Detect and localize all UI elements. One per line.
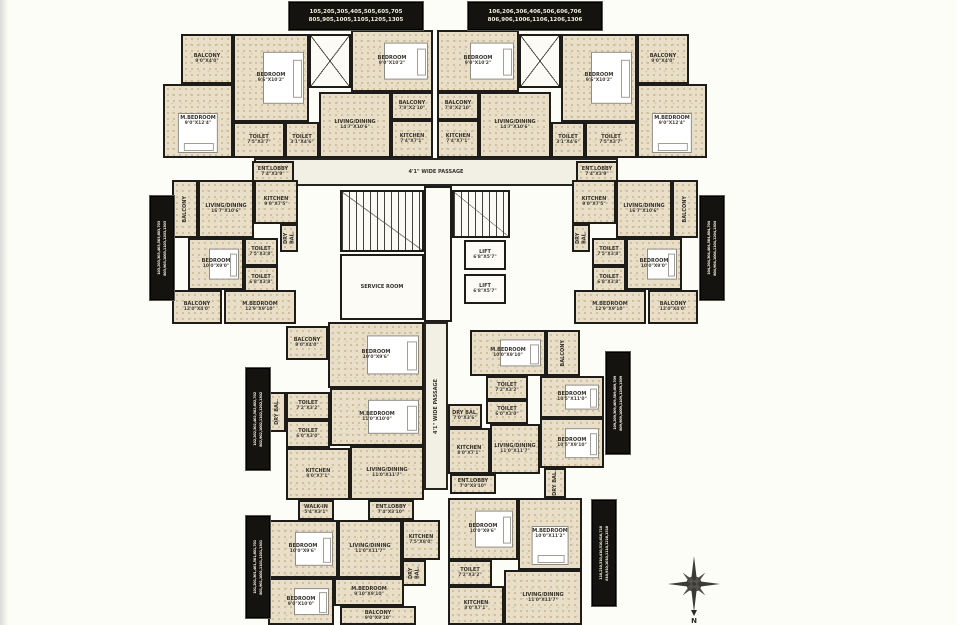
flat-stack-106: 106,206,306,406,506,606,706806,906,1006,… [468,2,602,30]
core-lobby [424,186,452,322]
u09-balcony-label: BALCONY [560,340,566,367]
pillow-icon [319,592,327,613]
u06-bedroom-dimensions: 9'6"X10'2" [586,78,613,83]
u09-bedroom-1-dimensions: 10'5"X11'0" [557,397,587,402]
flat-stack-103-line1: 103,203,303,403,503,603,703 [157,221,161,275]
flat-stack-101-line1: 101,201,301,401,501,601,701 [253,540,257,594]
u06-toilet-2: TOILET3'1"X4'6" [551,122,585,158]
u04-mbedroom: M.BEDROOM12'9"X9'10" [574,290,646,324]
flat-stack-106-line1: 106,206,306,406,506,606,706 [489,9,582,16]
passage-horizontal: 4'1" WIDE PASSAGE [254,158,618,186]
u01-bedroom-2-dimensions: 9'0"X10'0" [288,602,315,607]
passage-vertical-label: 4'1" WIDE PASSAGE [433,379,439,434]
floor-plan: N 4'1" WIDE PASSAGE4'1" WIDE PASSAGESERV… [0,0,957,625]
u10-kitchen: KITCHEN8'0"X7'1" [448,586,504,625]
u05-duct [309,34,351,88]
u05-toilet-1-dimensions: 7'5"X3'7" [247,140,270,145]
u01-mbedroom: M.BEDROOM9'10"X9'10" [334,578,404,606]
u04-balcony-1-label: BALCONY [682,196,688,223]
pillow-icon [503,48,512,75]
u04-toilet-2-dimensions: 6'8"X3'8" [597,280,620,285]
u01-bedroom-1-dimensions: 10'0"X9'6" [290,549,317,554]
u05-bedroom-2: BEDROOM9'0"X10'2" [351,30,433,92]
u01-walk-in: WALK-IN5'4"X3'1" [298,500,334,520]
flat-stack-102-line1: 102,202,302,402,502,602,702 [253,392,257,446]
u05-toilet-2: TOILET3'1"X4'6" [285,122,319,158]
flat-stack-103: 103,203,303,403,503,603,703803,903,1003,… [150,196,174,300]
u09-mbedroom: M.BEDROOM10'0"X9'10" [470,330,546,376]
flat-stack-106-line2: 806,906,1006,1106,1206,1306 [488,17,583,24]
u03-dry-bal-label: DRY BAL. [283,226,296,250]
compass-rose: N [662,550,726,624]
flat-stack-105-line2: 805,905,1005,1105,1205,1305 [309,17,404,24]
u04-dry-bal-label: DRY BAL. [575,226,588,250]
u05-kitchen-dimensions: 7'4"X7'1" [400,139,423,144]
flat-stack-109: 109,209,309,409,509,609,709809,909,1009,… [606,352,630,454]
u02-dry-bal: DRY BAL. [268,392,286,432]
lift-1: LIFT6'8"X5'7" [464,240,506,270]
u05-bedroom-2-dimensions: 9'0"X10'2" [379,61,406,66]
u04-mbedroom-dimensions: 12'9"X9'10" [595,307,625,312]
u01-ent-lobby-dimensions: 7'4"X3'10" [378,510,405,515]
flat-stack-110-line2: 810,910,1010,1110,1210,1310 [605,526,609,581]
u03-toilet-2-dimensions: 6'8"X3'8" [249,280,272,285]
u02-living-dimensions: 11'0"X11'7" [372,473,402,478]
flat-stack-109-line2: 809,909,1009,1109,1209,1309 [619,376,623,431]
u06-living-dimensions: 14'7"X10'6" [500,125,530,130]
u09-toilet-1: TOILET7'2"X3'2" [486,376,528,400]
compass-north-label: N [691,617,697,624]
lift-2: LIFT6'8"X5'7" [464,274,506,304]
pillow-icon [530,344,539,364]
u09-living: LIVING/DINING11'0"X11'7" [490,424,540,474]
u03-mbedroom: M.BEDROOM12'9"X9'10" [224,290,296,324]
u04-dry-bal: DRY BAL. [572,224,590,252]
u06-balcony-2-dimensions: 7'8"X2'10" [445,106,472,111]
u03-kitchen: KITCHEN9'0"X7'5" [254,180,298,224]
u03-toilet-1-dimensions: 7'5"X3'8" [249,252,272,257]
u09-dry-bal-2-label: DRY BAL. [552,470,558,496]
service-room: SERVICE ROOM [340,254,424,320]
staircase-right [452,190,510,238]
u09-kitchen: KITCHEN8'0"X7'1" [448,428,490,474]
u10-bedroom: BEDROOM10'0"X9'6" [448,498,518,560]
north-arrow-icon [691,610,697,616]
u05-living: LIVING/DINING14'7"X10'6" [319,92,391,158]
u04-balcony-2-dimensions: 12'0"X4'0" [660,307,687,312]
u03-ent-lobby-dimensions: 7'4"X3'9" [261,172,284,177]
u06-toilet-2-dimensions: 3'1"X4'6" [556,140,579,145]
u03-dry-bal: DRY BAL. [280,224,298,252]
pillow-icon [668,254,675,277]
u06-balcony-dimensions: 9'0"X4'0" [651,59,674,64]
u09-bedroom-2-dimensions: 10'5"X9'10" [557,443,587,448]
u03-kitchen-dimensions: 9'0"X7'5" [264,202,287,207]
flat-stack-101-line2: 801,901,1001,1101,1201,1301 [259,540,263,595]
u04-living: LIVING/DINING16'7"X10'6" [616,180,672,238]
u01-bedroom-2: BEDROOM9'0"X10'0" [268,578,334,625]
u09-dry-bal-2: DRY BAL. [544,468,566,498]
u04-bedroom: BEDROOM10'0"X9'0" [626,238,682,290]
u09-toilet-2: TOILET6'0"X3'0" [486,400,528,424]
u02-kitchen-dimensions: 8'0"X7'1" [306,474,329,479]
u01-walk-in-dimensions: 5'4"X3'1" [304,510,327,515]
flat-stack-110-line1: 110,210,310,410,510,610,710 [599,526,603,580]
u10-kitchen-dimensions: 8'0"X7'1" [464,606,487,611]
u04-kitchen: KITCHEN9'0"X7'5" [572,180,616,224]
u05-toilet-2-dimensions: 3'1"X4'6" [290,140,313,145]
u03-bedroom: BEDROOM10'0"X9'0" [188,238,244,290]
u05-bedroom-dimensions: 9'6"X10'2" [258,78,285,83]
flat-stack-109-line1: 109,209,309,409,509,609,709 [613,376,617,430]
flat-stack-104-line1: 104,204,304,404,504,604,704 [707,221,711,275]
lift-1-dimensions: 6'8"X5'7" [473,255,496,260]
u01-living-dimensions: 11'0"X11'7" [355,549,385,554]
u02-toilet-1-dimensions: 7'2"X3'2" [296,406,319,411]
pillow-icon [407,405,417,430]
u02-living: LIVING/DINING11'0"X11'7" [350,446,424,500]
u03-balcony-1-label: BALCONY [182,196,188,223]
u03-balcony-2: BALCONY12'0"X4'0" [172,290,222,324]
u05-balcony-dimensions: 9'0"X4'0" [195,59,218,64]
u06-bedroom-2: BEDROOM9'0"X10'2" [437,30,519,92]
u06-duct [519,34,561,88]
u09-balcony: BALCONY [546,330,580,376]
flat-stack-102: 102,202,302,402,502,602,702802,902,1002,… [246,368,270,470]
u02-mbedroom: M.BEDROOM11'0"X10'0" [330,388,424,446]
u01-kitchen-dimensions: 7'5"X8'0" [409,540,432,545]
staircase-left [340,190,424,252]
u02-balcony: BALCONY9'0"X4'0" [286,326,328,360]
pillow-icon [590,389,598,407]
u04-kitchen-dimensions: 9'0"X7'5" [582,202,605,207]
u04-toilet-1-dimensions: 7'5"X3'8" [597,252,620,257]
u01-ent-lobby: ENT.LOBBY7'4"X3'10" [368,500,414,520]
pillow-icon [537,555,564,563]
passage-horizontal-label: 4'1" WIDE PASSAGE [409,169,464,175]
u05-balcony-2: BALCONY7'8"X2'10" [391,92,433,120]
flat-stack-105-line1: 105,205,305,405,505,605,705 [310,9,403,16]
u06-balcony-2: BALCONY7'8"X2'10" [437,92,479,120]
u04-bedroom-dimensions: 10'0"X9'0" [641,264,668,269]
u02-toilet-1: TOILET7'2"X3'2" [286,392,330,420]
flat-stack-103-line2: 803,903,1003,1103,1203,1303 [163,221,167,276]
pillow-icon [503,516,511,543]
flat-stack-101: 101,201,301,401,501,601,701801,901,1001,… [246,516,270,618]
u04-balcony-2: BALCONY12'0"X4'0" [648,290,698,324]
u05-bedroom: BEDROOM9'6"X10'2" [233,34,309,122]
u06-mbedroom: M.BEDROOM9'0"X12'4" [637,84,707,158]
u05-toilet-1: TOILET7'5"X3'7" [233,122,285,158]
pillow-icon [323,537,331,562]
u06-kitchen: KITCHEN7'4"X7'1" [437,120,479,158]
u10-mbedroom: M.BEDROOM10'0"X11'2" [518,498,582,570]
u09-living-dimensions: 11'0"X11'7" [500,449,530,454]
pillow-icon [658,143,688,151]
compass-center [692,582,696,586]
u01-mbedroom-dimensions: 9'10"X9'10" [354,592,384,597]
flat-stack-105: 105,205,305,405,505,605,705805,905,1005,… [289,2,423,30]
flat-stack-104: 104,204,304,404,504,604,704804,904,1004,… [700,196,724,300]
flat-stack-102-line2: 802,902,1002,1102,1202,1302 [259,392,263,447]
lift-2-dimensions: 6'8"X5'7" [473,289,496,294]
page-edge-shadow [0,0,8,625]
u06-mbedroom-dimensions: 9'0"X12'4" [659,121,686,126]
u04-balcony-1: BALCONY [672,180,698,238]
u03-living-dimensions: 16'7"X10'6" [211,209,241,214]
u01-bedroom-1: BEDROOM10'0"X9'6" [268,520,338,578]
u02-toilet-2-dimensions: 6'0"X3'0" [296,434,319,439]
u09-dry-bal-1: DRY BAL.7'0"X3'6" [448,404,482,428]
u02-toilet-2: TOILET6'0"X3'0" [286,420,330,448]
u10-toilet-dimensions: 7'2"X3'2" [458,573,481,578]
u02-bedroom: BEDROOM10'0"X9'6" [328,322,424,388]
u09-kitchen-dimensions: 8'0"X7'1" [457,451,480,456]
pillow-icon [293,60,302,98]
pillow-icon [184,143,214,151]
u03-balcony-2-dimensions: 12'0"X4'0" [184,307,211,312]
u09-toilet-1-dimensions: 7'2"X3'2" [495,388,518,393]
flat-stack-110: 110,210,310,410,510,610,710810,910,1010,… [592,500,616,606]
u10-living-dimensions: 11'0"X11'7" [528,598,558,603]
u06-living: LIVING/DINING14'7"X10'6" [479,92,551,158]
u09-bedroom-2: BEDROOM10'5"X9'10" [540,418,604,468]
pillow-icon [621,60,630,98]
flat-stack-104-line2: 804,904,1004,1104,1204,1304 [713,221,717,276]
u09-bedroom-1: BEDROOM10'5"X11'0" [540,376,604,418]
u05-kitchen: KITCHEN7'4"X7'1" [391,120,433,158]
u04-toilet-1: TOILET7'5"X3'8" [592,238,626,266]
service-room-label: SERVICE ROOM [361,284,404,290]
pillow-icon [590,433,598,455]
u01-living: LIVING/DINING11'0"X11'7" [338,520,402,578]
u02-bedroom-dimensions: 10'0"X9'6" [363,355,390,360]
u02-mbedroom-dimensions: 11'0"X10'0" [362,417,392,422]
u05-living-dimensions: 14'7"X10'6" [340,125,370,130]
u02-dry-bal-label: DRY BAL. [274,399,280,425]
u03-bedroom-dimensions: 10'0"X9'0" [203,264,230,269]
u10-toilet: TOILET7'2"X3'2" [448,560,492,586]
u02-balcony-dimensions: 9'0"X4'0" [295,343,318,348]
u03-mbedroom-dimensions: 12'9"X9'10" [245,307,275,312]
u05-mbedroom: M.BEDROOM9'0"X12'4" [163,84,233,158]
u06-toilet-1: TOILET7'5"X3'7" [585,122,637,158]
pillow-icon [407,342,417,371]
u01-kitchen: KITCHEN7'5"X8'0" [402,520,440,560]
u05-mbedroom-dimensions: 9'0"X12'4" [185,121,212,126]
u06-kitchen-dimensions: 7'4"X7'1" [446,139,469,144]
pillow-icon [417,48,426,75]
u05-balcony: BALCONY9'0"X4'0" [181,34,233,84]
u04-living-dimensions: 16'7"X10'6" [629,209,659,214]
u03-toilet-1: TOILET7'5"X3'8" [244,238,278,266]
u09-ent-lobby: ENT.LOBBY7'0"X3'10" [450,474,496,494]
u06-balcony: BALCONY9'0"X4'0" [637,34,689,84]
u03-balcony-1: BALCONY [172,180,198,238]
u06-toilet-1-dimensions: 7'5"X3'7" [599,140,622,145]
u09-toilet-2-dimensions: 6'0"X3'0" [495,412,518,417]
u10-bedroom-dimensions: 10'0"X9'6" [470,529,497,534]
u01-balcony: BALCONY9'0"X9'10" [340,606,416,625]
passage-vertical: 4'1" WIDE PASSAGE [424,322,448,490]
u01-dry-bal-label: DRY BAL. [408,562,421,584]
u09-dry-bal-1-dimensions: 7'0"X3'6" [453,416,476,421]
u05-balcony-2-dimensions: 7'8"X2'10" [399,106,426,111]
pillow-icon [230,254,237,277]
u04-ent-lobby-dimensions: 7'4"X3'9" [585,172,608,177]
u06-bedroom: BEDROOM9'6"X10'2" [561,34,637,122]
u03-living: LIVING/DINING16'7"X10'6" [198,180,254,238]
u09-ent-lobby-dimensions: 7'0"X3'10" [460,484,487,489]
u10-mbedroom-dimensions: 10'0"X11'2" [535,534,565,539]
u01-dry-bal: DRY BAL. [402,560,426,586]
u01-balcony-dimensions: 9'0"X9'10" [365,616,392,621]
u09-mbedroom-dimensions: 10'0"X9'10" [493,353,523,358]
u06-bedroom-2-dimensions: 9'0"X10'2" [465,61,492,66]
u02-kitchen: KITCHEN8'0"X7'1" [286,448,350,500]
u10-living: LIVING/DINING11'0"X11'7" [504,570,582,625]
